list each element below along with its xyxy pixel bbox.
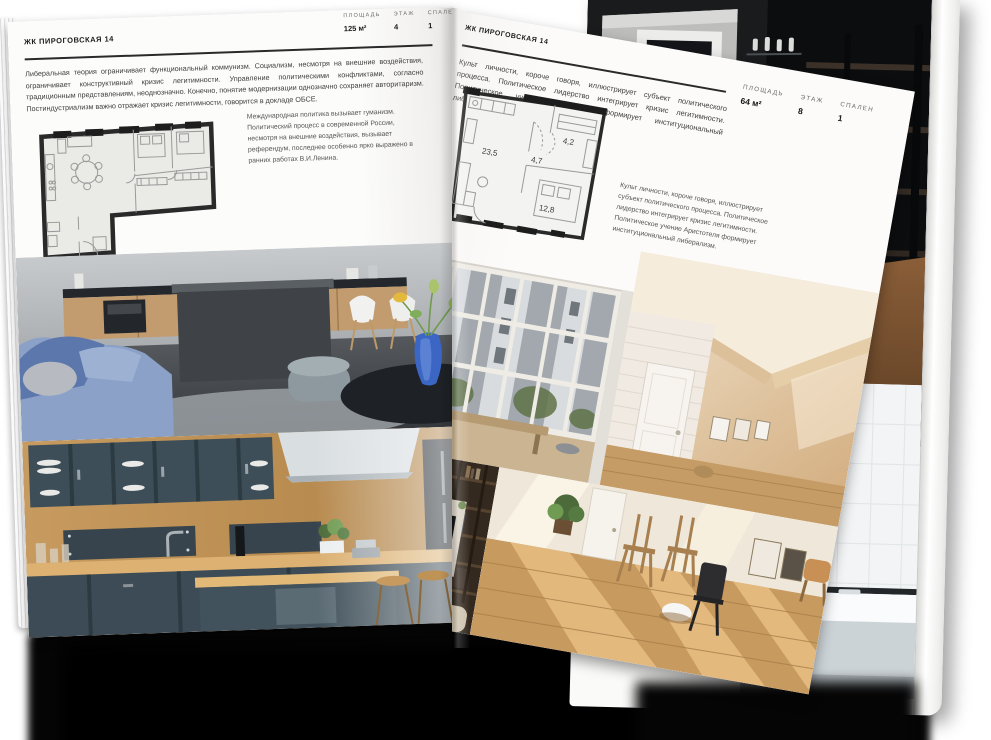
stat-floor: ЭТАЖ 4 (394, 11, 416, 32)
stat-area-value: 64 м² (740, 96, 782, 113)
stat-floor-label: ЭТАЖ (394, 11, 415, 18)
stat-floor-value: 4 (394, 22, 415, 32)
left-page: ЖК ПИРОГОВСКАЯ 14 ПЛОЩАДЬ 125 м² ЭТАЖ 4 … (7, 6, 474, 637)
photo-teal-kitchen (22, 426, 475, 637)
stat-floor-value: 8 (797, 106, 822, 120)
stat-area-label: ПЛОЩАДЬ (742, 84, 784, 98)
room-area-label: 4,7 (530, 155, 543, 166)
stats-row: ПЛОЩАДЬ 125 м² ЭТАЖ 4 СПАЛЕН 1 (343, 9, 459, 33)
stat-floor: ЭТАЖ 8 (797, 94, 824, 120)
right-page: ЖК ПИРОГОВСКАЯ 14 Культ личности, короче… (452, 10, 915, 694)
page-title: ЖК ПИРОГОВСКАЯ 14 (24, 34, 114, 46)
stat-floor-label: ЭТАЖ (800, 94, 824, 105)
stat-bedrooms: СПАЛЕН 1 (837, 101, 874, 129)
floor-plan-right: 23,5 4,7 4,2 12,8 (452, 75, 624, 253)
stats-row: ПЛОЩАДЬ 64 м² ЭТАЖ 8 СПАЛЕН 1 (740, 84, 875, 129)
magazine-mockup-scene: ЖК ПИРОГОВСКАЯ 14 ПЛОЩАДЬ 125 м² ЭТАЖ 4 … (0, 0, 991, 740)
upper-cabinets (28, 437, 274, 507)
floor-plan-left (27, 110, 230, 267)
plan-note: Международная политика вызывает гуманизм… (247, 105, 427, 166)
stat-bedrooms-value: 1 (837, 113, 872, 129)
plan-note: Культ личности, короче говоря, иллюстрир… (612, 180, 771, 261)
stat-area: ПЛОЩАДЬ 125 м² (343, 12, 381, 33)
photo-kitchen-living (16, 242, 468, 441)
stat-area: ПЛОЩАДЬ 64 м² (740, 84, 785, 113)
stat-area-label: ПЛОЩАДЬ (343, 12, 380, 19)
right-page-clip: ЖК ПИРОГОВСКАЯ 14 Культ личности, короче… (452, 0, 991, 740)
room-area-label: 4,2 (562, 136, 575, 147)
stat-bedrooms-label: СПАЛЕН (840, 101, 875, 114)
photo-attic-room (600, 251, 879, 526)
intro-paragraph: Либеральная теория ограничивает функцион… (25, 54, 424, 114)
stat-area-value: 125 м² (344, 23, 382, 33)
page-title: ЖК ПИРОГОВСКАЯ 14 (464, 25, 548, 47)
